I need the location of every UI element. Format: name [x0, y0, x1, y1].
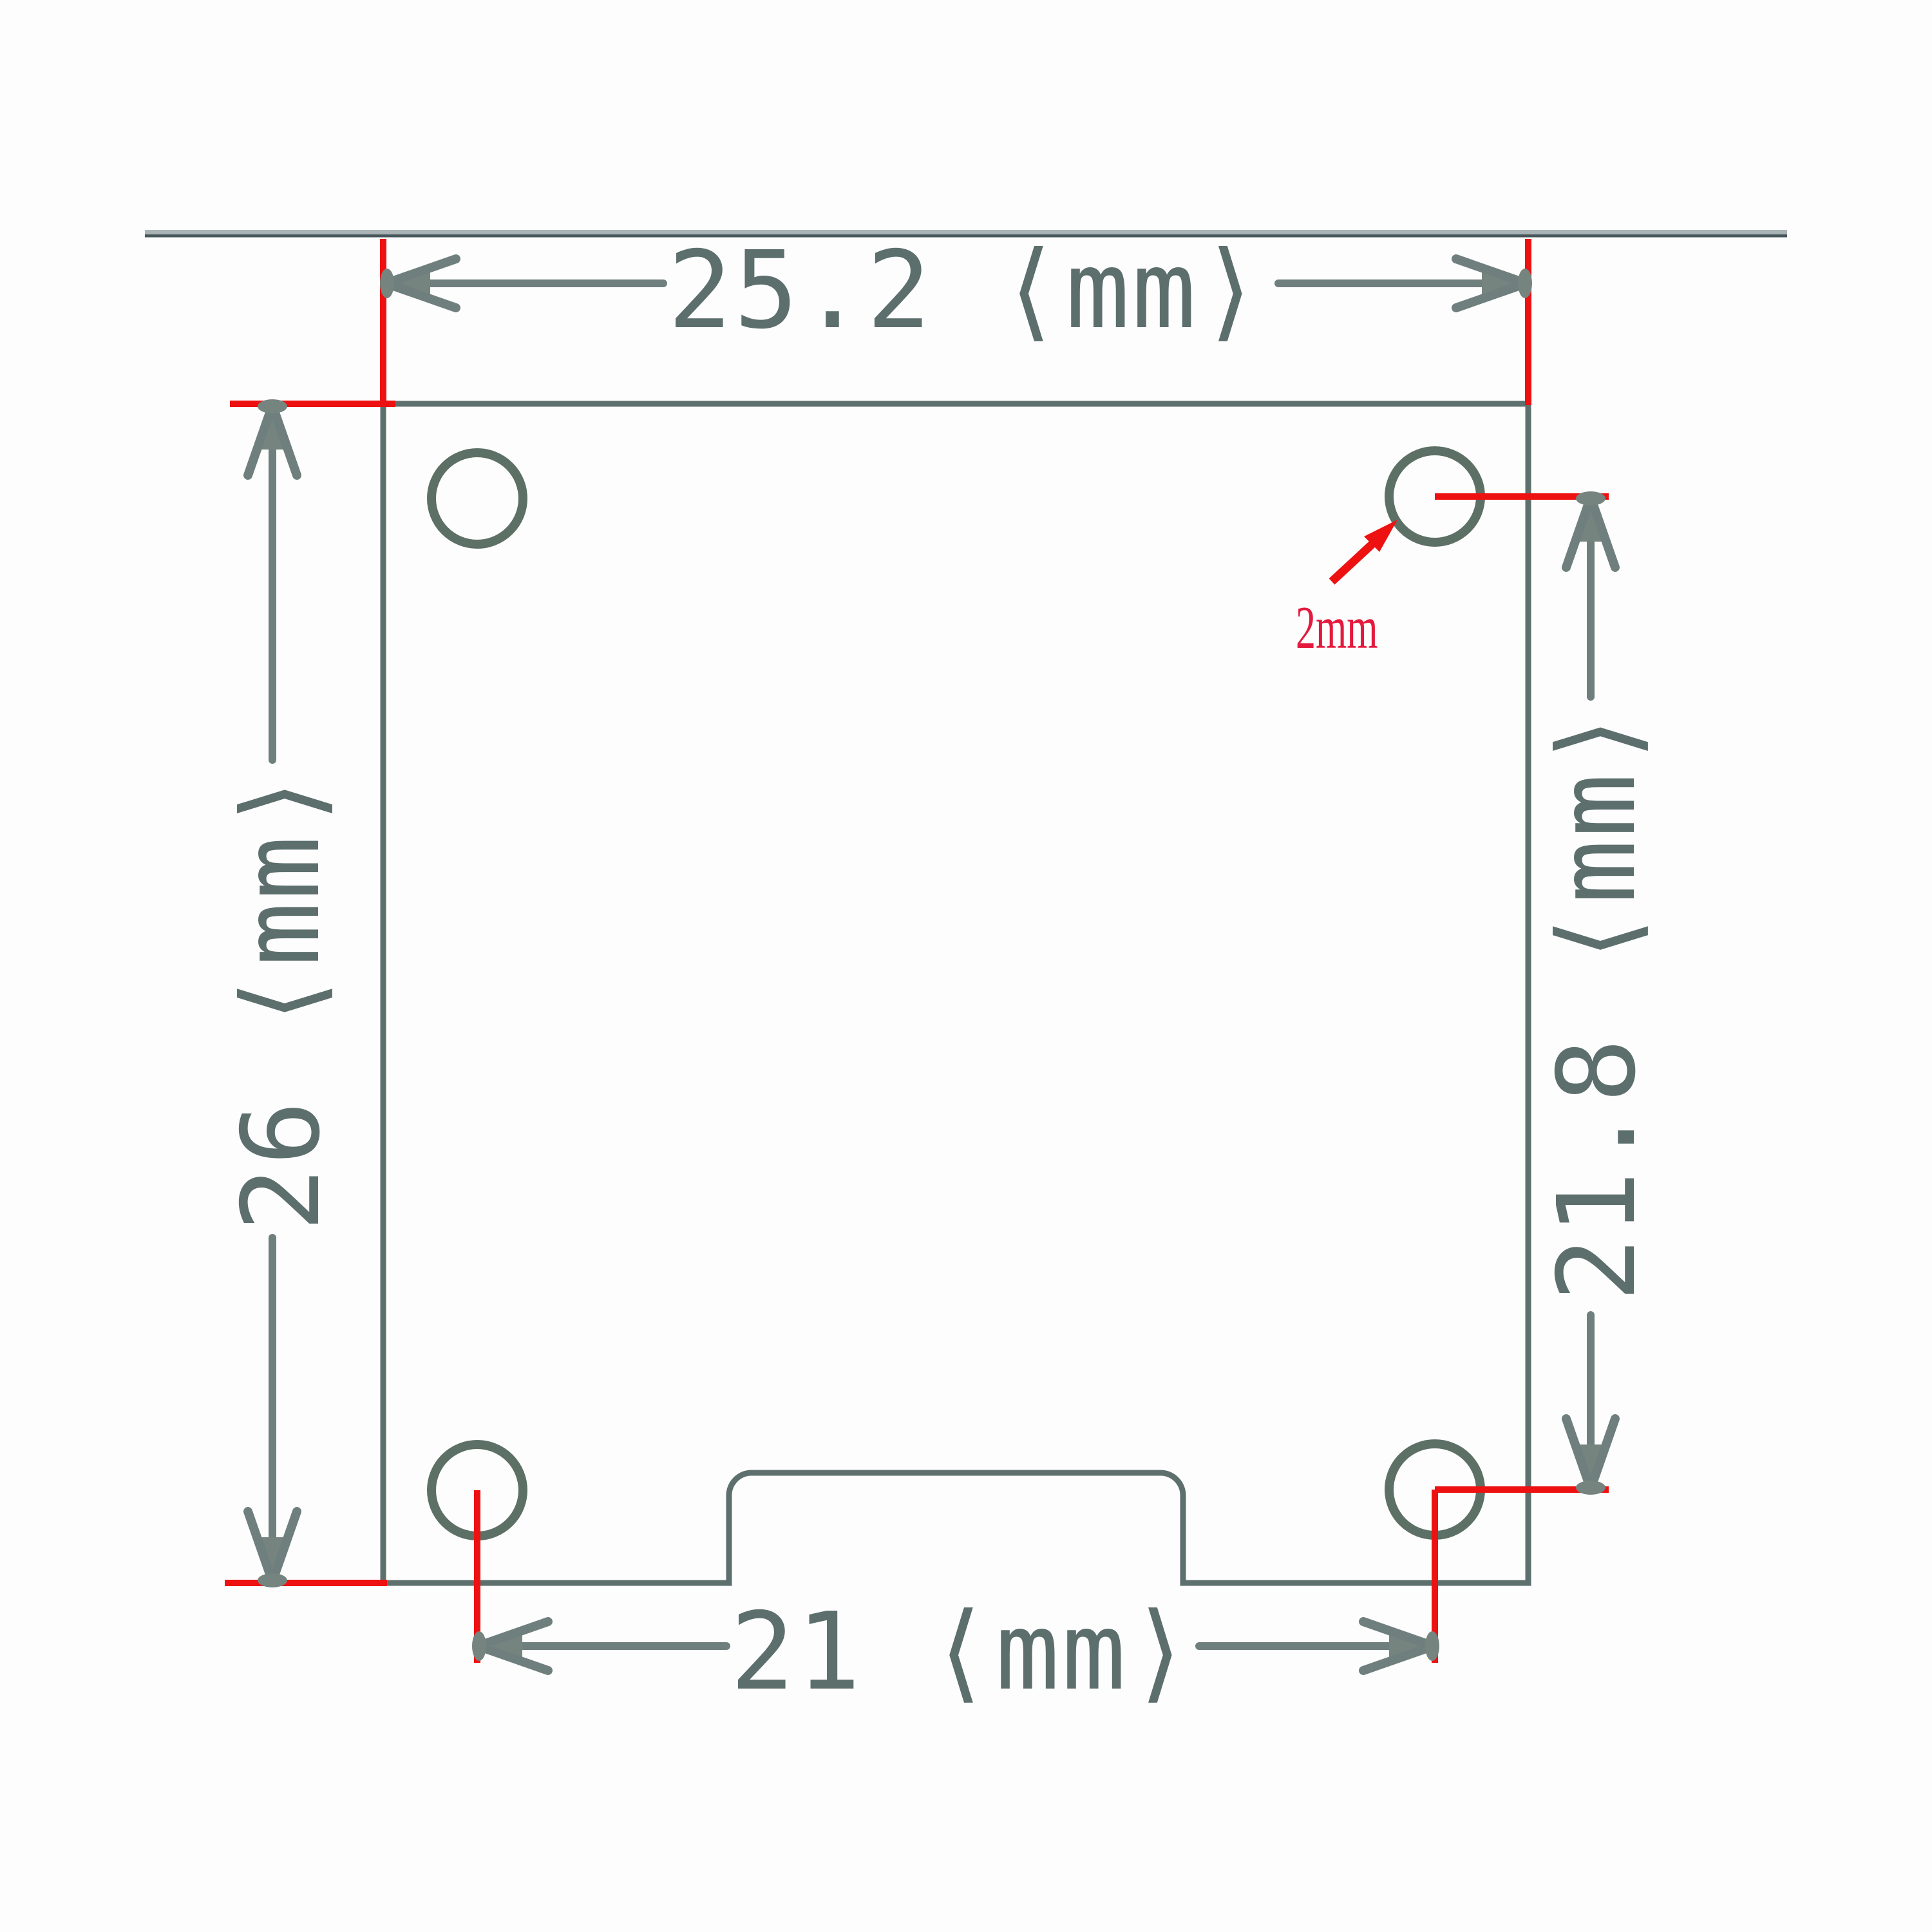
hole-diameter-label: 2mm	[1296, 598, 1378, 658]
dim-label-board-width: 25.2 ⟨mm⟩	[668, 238, 1264, 345]
board-outline	[383, 404, 1528, 1583]
dim-label-hole-spacing-vertical: 21.8 ⟨mm⟩	[1544, 705, 1651, 1302]
dimension-drawing: 25.2 ⟨mm⟩ 26 ⟨mm⟩ 21.8 ⟨mm⟩ 21 ⟨mm⟩ 2mm	[0, 0, 1932, 1932]
dim-label-board-height: 26 ⟨mm⟩	[229, 768, 336, 1232]
hole-diameter-leader-arrow	[1332, 520, 1397, 582]
mounting-hole-top-left	[431, 453, 523, 544]
dim-label-hole-spacing-horizontal: 21 ⟨mm⟩	[730, 1599, 1195, 1706]
extension-lines	[225, 239, 1609, 1663]
